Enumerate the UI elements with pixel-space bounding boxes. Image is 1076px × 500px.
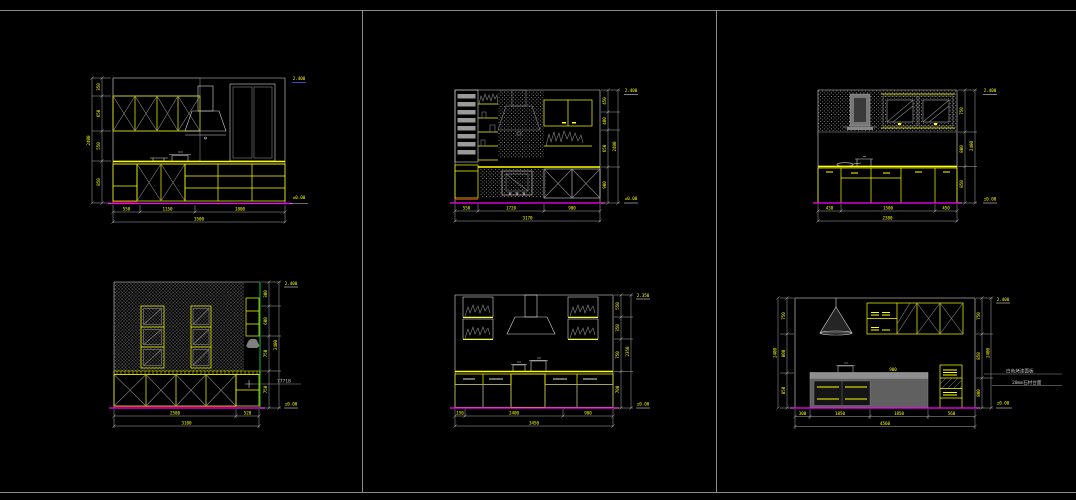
dim-label: 1850 bbox=[835, 411, 846, 416]
dim-total-label: 2380 bbox=[882, 215, 893, 220]
level-label: 2.400 bbox=[293, 76, 306, 81]
level-label: 2.400 bbox=[984, 88, 997, 93]
level-markers: 2.400 ±0.00 bbox=[996, 297, 1012, 408]
dim-label: 150 bbox=[456, 410, 464, 415]
left-glass-cabinets bbox=[463, 297, 493, 340]
open-shelf-unit bbox=[246, 298, 259, 348]
bottom-dimension-chain: 2580 520 3100 bbox=[112, 409, 260, 428]
dim-label: 600 bbox=[263, 317, 268, 325]
wall-stipple-lower bbox=[480, 169, 546, 198]
level-label: ±0.00 bbox=[984, 197, 997, 202]
dim-total-label: 2350 bbox=[625, 346, 630, 357]
right-dimension-chain: 450 400 650 900 2400 bbox=[601, 88, 620, 204]
dim-label: 750 bbox=[263, 349, 268, 357]
dim-label: 750 bbox=[263, 385, 268, 393]
tall-cabinet bbox=[230, 84, 275, 161]
elevation-e[interactable]: 2.350 ±0.00 550 350 750 700 2350 150 240… bbox=[443, 283, 658, 438]
dim-label: 700 bbox=[615, 385, 620, 393]
dim-label: 350 bbox=[615, 324, 620, 332]
dim-total-label: 2400 bbox=[612, 141, 617, 152]
dim-total-label: 3100 bbox=[181, 420, 192, 425]
dim-label: 550 bbox=[123, 206, 131, 211]
dim-label: 550 bbox=[463, 205, 471, 210]
dim-total-label: 3500 bbox=[194, 216, 205, 221]
level-markers: 2.400 ±0.00 bbox=[624, 88, 638, 203]
range-hood bbox=[507, 295, 555, 334]
wall-hatch bbox=[114, 282, 244, 371]
wall-tiles bbox=[818, 132, 957, 166]
dim-label: 850 bbox=[781, 386, 786, 394]
dim-total-label: 3170 bbox=[522, 215, 533, 220]
cone-hood bbox=[820, 298, 852, 335]
tall-louver-cabinet bbox=[455, 90, 478, 200]
right-dimension-chain: 750 800 850 2400 bbox=[958, 88, 977, 204]
upper-cabinets bbox=[867, 303, 963, 334]
dim-total-label: 2400 bbox=[986, 347, 991, 358]
divider-right bbox=[716, 10, 717, 492]
dim-label: 450 bbox=[602, 97, 607, 105]
dim-total-label: 2400 bbox=[86, 135, 91, 146]
base-cabinets bbox=[113, 164, 285, 202]
cookware bbox=[837, 157, 873, 167]
elevation-f[interactable]: 900 750 800 850 2400 750 850 800 2400 bbox=[772, 288, 1072, 438]
left-dimension-chain: 350 650 550 850 2400 bbox=[86, 76, 111, 204]
level-markers: 2.350 ±0.00 bbox=[636, 293, 650, 408]
dim-label: 300 bbox=[799, 411, 807, 416]
level-label: 2.350 bbox=[637, 293, 650, 298]
dim-label: 550 bbox=[96, 142, 101, 150]
bottom-dimension-chain: 550 1150 1800 3500 bbox=[111, 205, 286, 224]
right-glass-cabinets bbox=[568, 297, 598, 340]
dim-label: 800 bbox=[959, 145, 964, 153]
dim-label: 900 bbox=[602, 181, 607, 189]
border-bottom bbox=[0, 492, 1076, 493]
bottom-dimension-chain: 150 2400 900 3450 bbox=[453, 409, 614, 428]
dim-label: 900 bbox=[568, 205, 576, 210]
decor-pot bbox=[246, 339, 259, 348]
dim-label: 350 bbox=[96, 83, 101, 91]
dim-label: 650 bbox=[602, 144, 607, 152]
dim-label: 750 bbox=[976, 312, 981, 320]
dim-total-label: 4560 bbox=[880, 421, 891, 426]
island-label: 900 bbox=[889, 367, 897, 372]
bottom-dimension-chain: 430 1500 450 2380 bbox=[816, 204, 958, 223]
dim-label: 750 bbox=[959, 107, 964, 115]
countertop bbox=[114, 371, 260, 374]
dim-label: 1150 bbox=[162, 206, 173, 211]
dim-label: 400 bbox=[602, 117, 607, 125]
bottom-dimension-chain: 550 1720 900 3170 bbox=[453, 204, 601, 223]
base-cabinets bbox=[818, 168, 957, 203]
dim-label: 650 bbox=[96, 109, 101, 117]
right-dimension-chain: 750 850 800 2400 bbox=[976, 296, 993, 409]
elevation-a[interactable]: 2.400 ±0.00 350 650 550 850 2400 550 115… bbox=[80, 56, 330, 236]
dim-label: 2400 bbox=[509, 410, 520, 415]
range-hood bbox=[185, 86, 226, 139]
base-cabinets bbox=[455, 374, 613, 408]
level-markers: 2.400 ±0.00 bbox=[290, 76, 308, 204]
dim-label: 850 bbox=[976, 352, 981, 360]
dim-label: 850 bbox=[96, 178, 101, 186]
level-label: ±0.00 bbox=[285, 402, 298, 407]
right-upper-cabinets bbox=[544, 100, 592, 146]
wall-hatch-bands bbox=[113, 78, 200, 161]
cookware bbox=[836, 363, 855, 372]
level-label: ±0.00 bbox=[637, 402, 650, 407]
bottom-dimension-chain: 300 1850 1850 560 4560 bbox=[793, 409, 976, 429]
dim-label: 300 bbox=[263, 290, 268, 298]
level-markers: 2.400 ±0.00 bbox=[284, 281, 298, 408]
right-shelf-unit bbox=[940, 365, 962, 408]
dim-label: 450 bbox=[942, 205, 950, 210]
right-dimension-chain: 550 350 750 700 2350 bbox=[614, 293, 633, 409]
level-label: 2.400 bbox=[997, 297, 1010, 302]
cookware bbox=[150, 152, 191, 161]
dim-label: 900 bbox=[584, 410, 592, 415]
cookware bbox=[511, 358, 548, 371]
left-dimension-chain: 750 800 850 2400 bbox=[773, 296, 795, 409]
cad-viewport: 2.400 ±0.00 350 650 550 850 2400 550 115… bbox=[0, 0, 1076, 500]
room-lines bbox=[113, 78, 285, 203]
level-label: ±0.00 bbox=[997, 401, 1010, 406]
dim-label: 2580 bbox=[170, 410, 181, 415]
divider-left bbox=[362, 10, 363, 492]
island-counter: 900 bbox=[810, 367, 928, 408]
dim-label: 750 bbox=[615, 351, 620, 359]
elevation-c[interactable]: 2.400 ±0.00 750 800 850 2400 430 1500 45… bbox=[795, 78, 1015, 238]
wall-tiles bbox=[455, 295, 613, 372]
level-label: 2.400 bbox=[285, 281, 298, 286]
border-top bbox=[0, 10, 1076, 11]
dim-label: 750 bbox=[781, 312, 786, 320]
elevation-d[interactable]: 7771B 2.400 ±0.00 300 600 750 750 2400 2… bbox=[95, 272, 330, 442]
dim-label: 560 bbox=[948, 411, 956, 416]
right-dimension-chain: 300 600 750 750 2400 bbox=[261, 280, 281, 409]
material-notes: 白色烤漆面板 20mm石材台面 bbox=[984, 368, 1062, 387]
dim-label: 850 bbox=[959, 180, 964, 188]
dim-label: 520 bbox=[244, 410, 252, 415]
dim-label: 1850 bbox=[894, 411, 905, 416]
elevation-b[interactable]: 2.400 ±0.00 450 400 650 900 2400 550 172… bbox=[432, 70, 657, 235]
dim-label: 800 bbox=[781, 349, 786, 357]
dim-label: 1800 bbox=[235, 206, 246, 211]
note-label: 白色烤漆面板 bbox=[1006, 368, 1034, 375]
note-label: 20mm石材台面 bbox=[1012, 379, 1042, 386]
wall-stipple-upper bbox=[498, 90, 544, 158]
dim-label: 550 bbox=[615, 302, 620, 310]
base-cabinets bbox=[114, 375, 259, 407]
dim-label: 430 bbox=[826, 205, 834, 210]
dim-total-label: 3450 bbox=[529, 420, 540, 425]
dim-total-label: 2400 bbox=[969, 140, 974, 151]
dim-label: 1720 bbox=[506, 205, 517, 210]
level-label: 2.400 bbox=[625, 88, 638, 93]
dim-label: 800 bbox=[976, 389, 981, 397]
level-markers: 2.400 ±0.00 bbox=[983, 88, 997, 203]
right-base-cabinet bbox=[544, 169, 600, 198]
room-lines bbox=[455, 295, 613, 408]
dim-total-label: 2400 bbox=[773, 347, 778, 358]
countertop bbox=[113, 162, 285, 165]
dim-total-label: 2400 bbox=[273, 339, 278, 350]
open-shelves bbox=[478, 94, 498, 160]
level-label: ±0.00 bbox=[293, 195, 306, 200]
dim-label: 1500 bbox=[883, 205, 894, 210]
level-label: ±0.00 bbox=[625, 196, 638, 201]
